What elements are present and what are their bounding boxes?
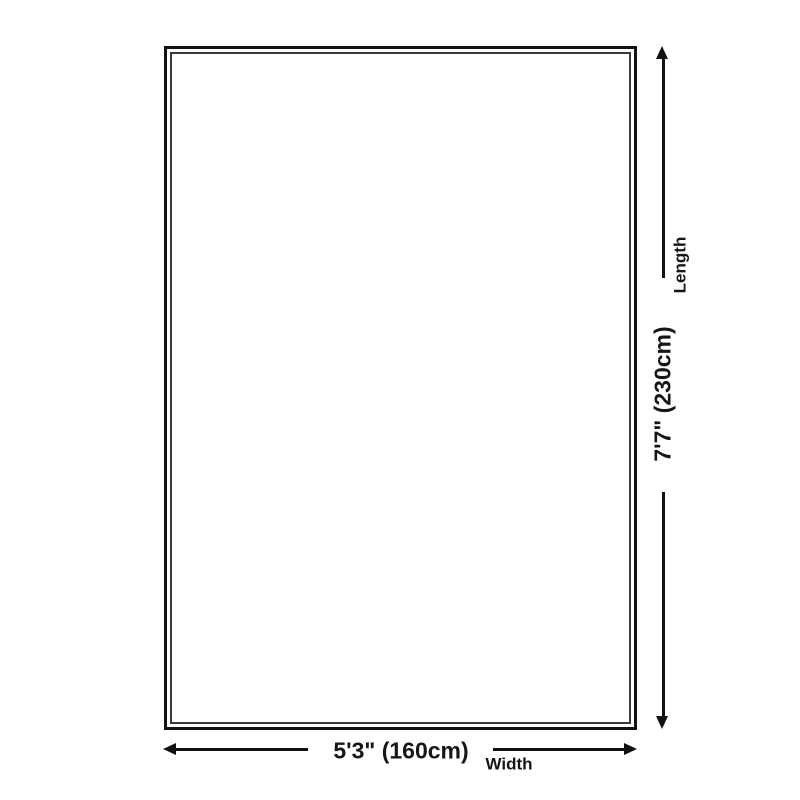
width-dimension-line-left — [174, 748, 308, 751]
rug-outline — [164, 46, 637, 730]
arrow-right-icon — [624, 743, 637, 755]
length-value: 7'7" (230cm) — [652, 326, 675, 461]
length-label: Length — [672, 237, 689, 294]
width-dimension-line-right — [493, 748, 625, 751]
width-value: 5'3" (160cm) — [333, 740, 468, 763]
width-label: Width — [485, 756, 532, 773]
length-dimension-line-top — [662, 57, 665, 278]
rug-size-diagram: Length 7'7" (230cm) 5'3" (160cm) Width — [0, 0, 800, 800]
arrow-down-icon — [656, 716, 668, 729]
rug-inner-border — [170, 52, 631, 724]
length-dimension-line-bottom — [662, 492, 665, 716]
